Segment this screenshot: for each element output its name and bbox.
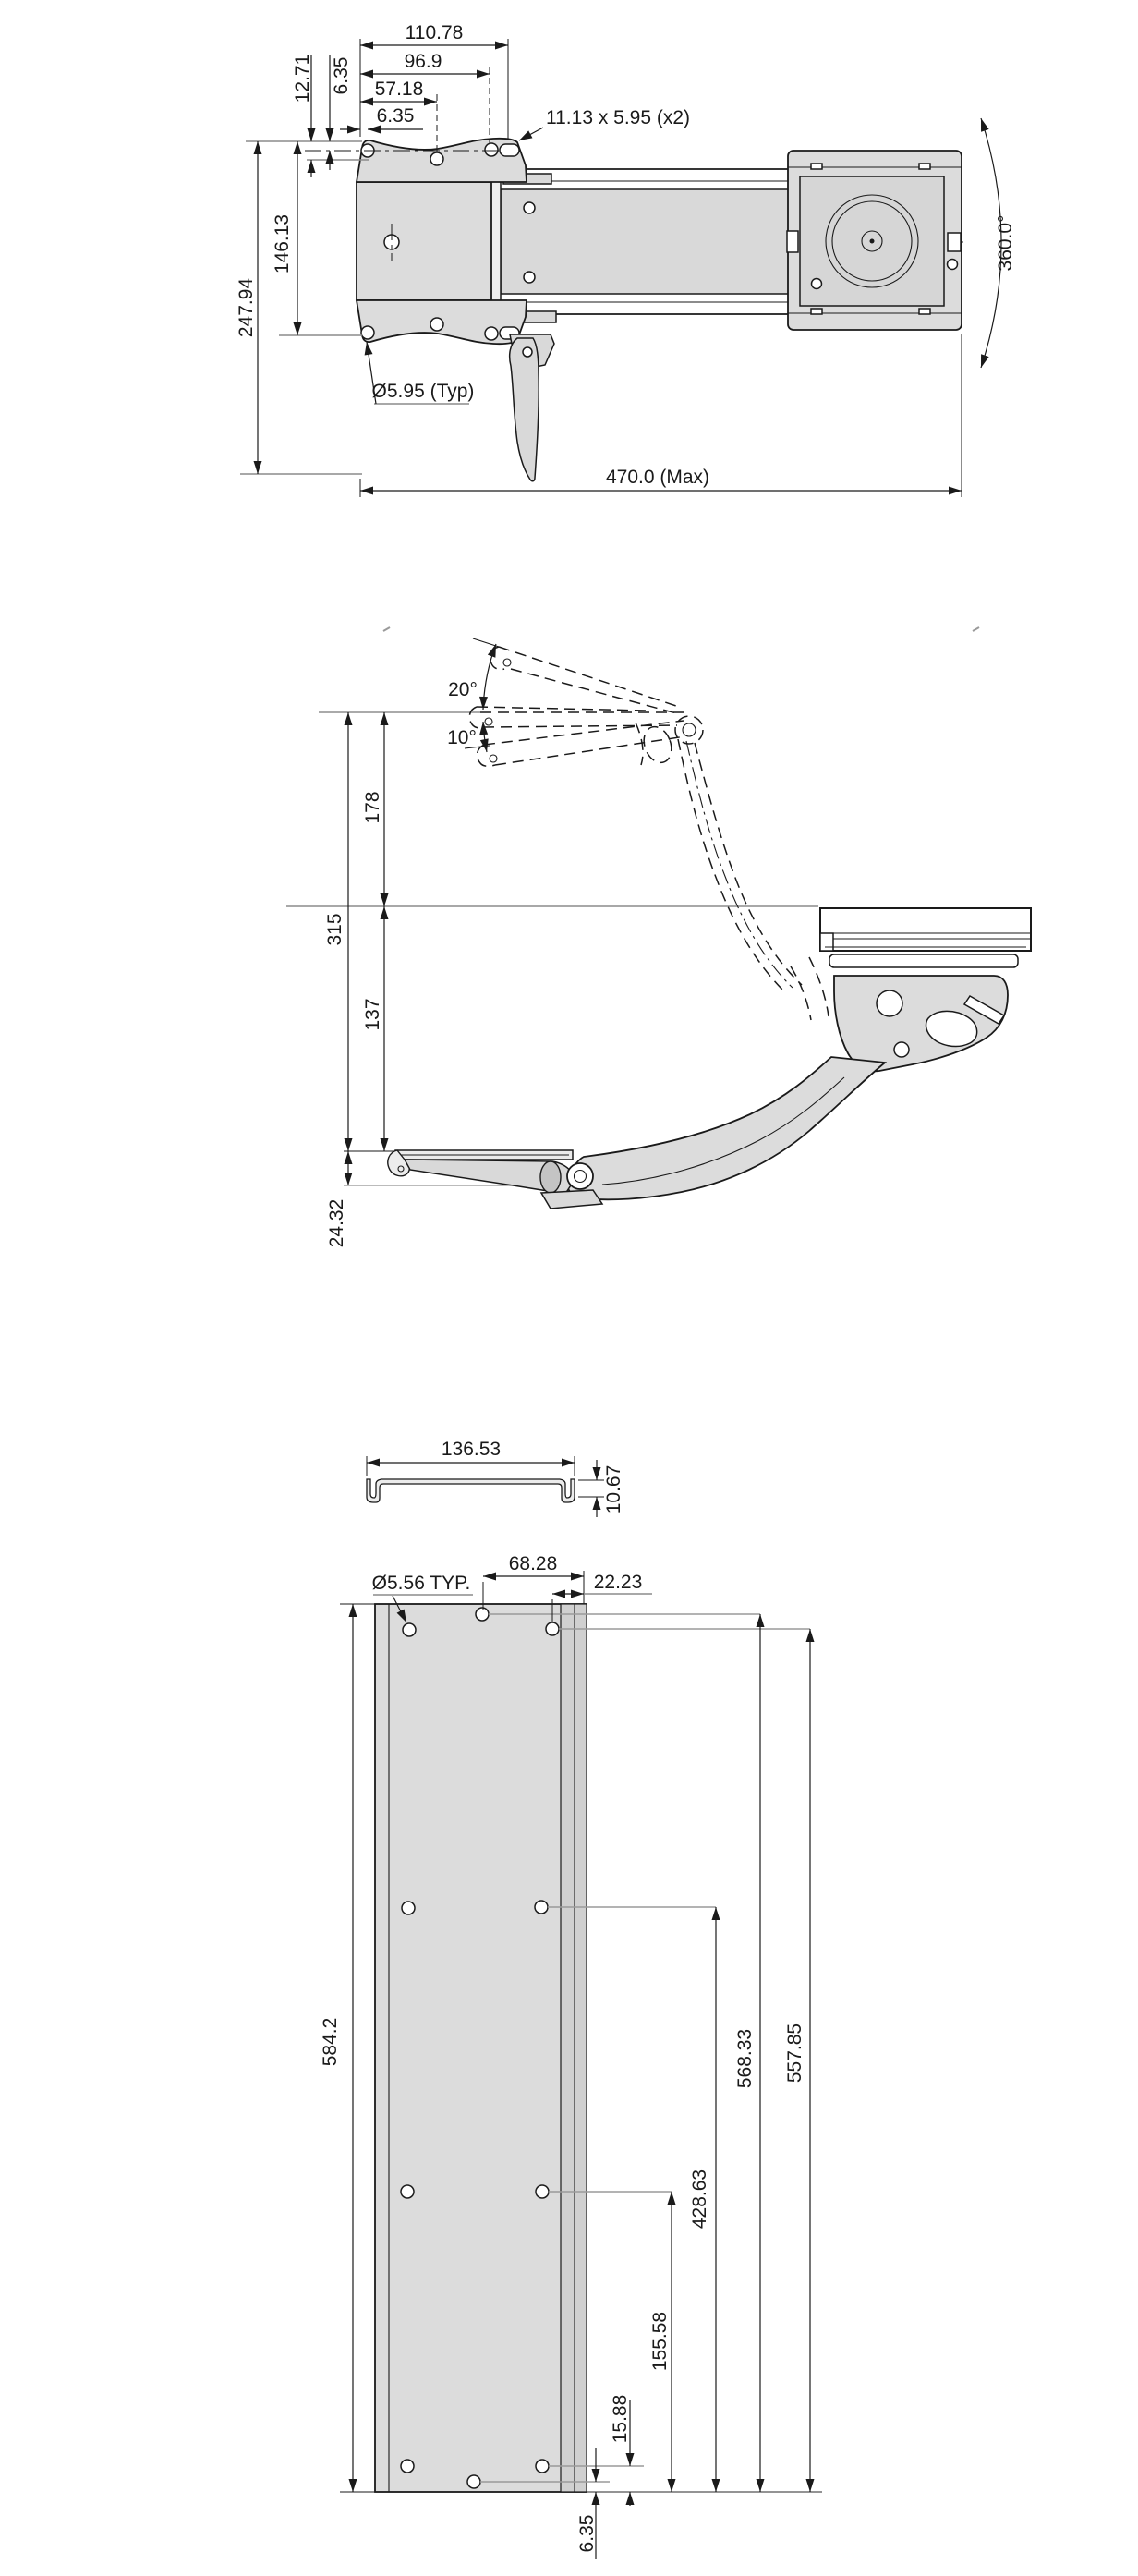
plate-hole: [485, 143, 498, 156]
dim-channel-height: 10.67: [603, 1465, 624, 1514]
swivel-block: [787, 151, 962, 330]
tilt-dimensions: 20° 10°: [447, 644, 496, 752]
beam-hole: [524, 272, 535, 283]
dim-plate-length: 584.2: [320, 2018, 341, 2067]
dim-below: 137: [362, 998, 383, 1030]
dim-width-inner: 57.18: [375, 79, 424, 100]
plate-hole: [485, 327, 498, 340]
dim-height-outer: 247.94: [236, 278, 257, 338]
dim-row-f: 6.35: [576, 2515, 598, 2553]
bottom-view: 136.53 10.67: [320, 1439, 822, 2559]
dim-channel-width: 136.53: [442, 1439, 501, 1460]
plate-hole: [430, 318, 443, 331]
plate-hole: [402, 1902, 415, 1914]
note-hole: Ø5.95 (Typ): [372, 381, 475, 402]
dim-edge-offset: 6.35: [377, 105, 415, 127]
plate-hole: [403, 1623, 416, 1636]
plate-hole: [536, 2185, 549, 2198]
plate-hole: [536, 2460, 549, 2473]
bracket-hole: [877, 990, 902, 1016]
plate-hole: [401, 2185, 414, 2198]
note-hole-typ: Ø5.56 TYP.: [372, 1573, 471, 1594]
plate-slot: [500, 144, 519, 156]
side-view-dimensions: 315 178 137 24.32: [324, 712, 384, 1247]
plate-hole: [476, 1608, 489, 1621]
note-slot: 11.13 x 5.95 (x2): [546, 107, 690, 128]
support-arm: [567, 1057, 885, 1199]
dim-total: 315: [324, 913, 345, 945]
tray-tilt-positions: [465, 638, 703, 767]
block-hole: [948, 260, 958, 270]
tray-hinge-pin: [567, 1163, 593, 1189]
datum-tick: [973, 627, 979, 631]
channel-profile: 136.53 10.67: [367, 1439, 624, 1517]
dim-top-offset-inner: 6.35: [331, 57, 352, 95]
slide-rail: [829, 954, 1018, 967]
dim-drop: 24.32: [326, 1199, 347, 1248]
tray-hinge-boss: [540, 1161, 561, 1193]
technical-drawing-page: 110.78 96.9 57.18 6.35 12.71 6.35 146.13: [0, 0, 1138, 2576]
plate-hole: [546, 1622, 559, 1635]
dim-tilt-up: 20°: [448, 679, 478, 700]
keyboard-tray: [388, 1150, 602, 1209]
plate-hole: [401, 2460, 414, 2473]
dim-edge-inset: 22.23: [594, 1572, 643, 1593]
dim-length: 470.0 (Max): [606, 467, 709, 488]
dim-swivel: 360.0°: [995, 215, 1016, 272]
plate-hole: [467, 2475, 480, 2488]
beam-hole: [524, 202, 535, 213]
dim-height-inner: 146.13: [272, 214, 293, 273]
dim-row-c: 428.63: [689, 2169, 710, 2229]
dim-row-a: 568.33: [734, 2029, 756, 2088]
drawing-canvas: 110.78 96.9 57.18 6.35 12.71 6.35 146.13: [0, 0, 1138, 2576]
datum-tick: [383, 627, 390, 631]
dim-width-outer: 110.78: [406, 22, 464, 43]
dim-row-e: 15.88: [610, 2395, 631, 2444]
bracket-hole: [894, 1042, 909, 1057]
dim-row-d: 155.58: [649, 2312, 671, 2371]
dim-top-offset-outer: 12.71: [292, 55, 313, 103]
slide-beam: [501, 189, 793, 294]
block-hole: [812, 279, 822, 289]
top-view: 110.78 96.9 57.18 6.35 12.71 6.35 146.13: [236, 22, 1016, 497]
dim-tilt-down: 10°: [447, 727, 477, 748]
release-lever: [510, 334, 554, 481]
side-view: 20° 10°: [286, 627, 1031, 1247]
plate-hole: [535, 1901, 548, 1914]
dim-above: 178: [362, 791, 383, 823]
plate-hole: [430, 152, 443, 165]
dim-row-b: 557.85: [784, 2023, 805, 2083]
track-rail: [820, 908, 1031, 967]
arm-raised-position: [678, 739, 829, 1020]
dim-width-mid: 96.9: [405, 51, 442, 72]
mount-bracket: [834, 976, 1008, 1071]
dim-hole-inset: 68.28: [509, 1553, 558, 1574]
plate-edge-strip: [561, 1604, 587, 2492]
lever-hole: [523, 347, 532, 357]
plate-hole: [361, 326, 374, 339]
